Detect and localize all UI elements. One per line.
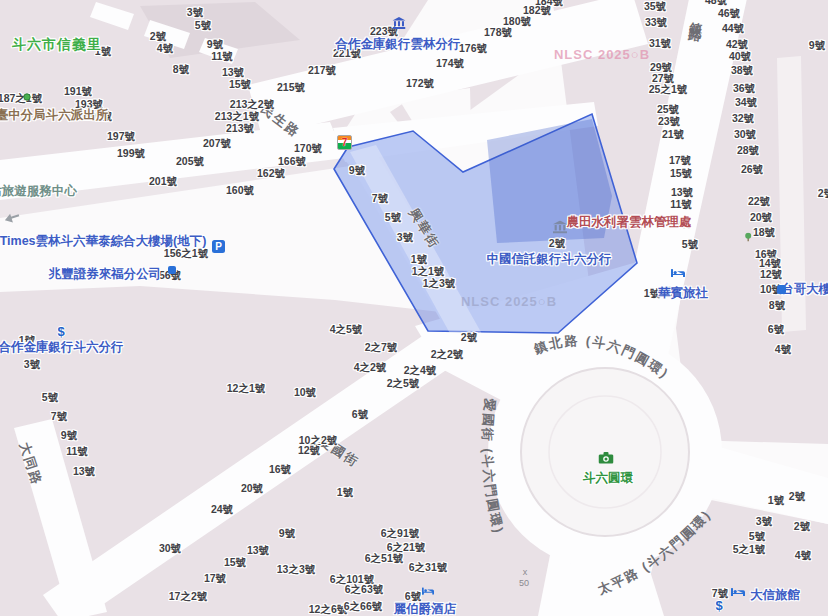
house-number-label: 8號 — [769, 299, 785, 313]
house-number-label: 35號 — [644, 0, 666, 14]
house-number-label: 3號 — [24, 358, 40, 372]
house-number-label: 15號 — [224, 556, 246, 570]
house-number-label: 9號 — [279, 527, 295, 541]
house-number-label: 160號 — [226, 184, 254, 198]
one-way-arrow-icon[interactable] — [4, 213, 21, 224]
spot-height-label: x — [523, 567, 528, 577]
house-number-label: 20號 — [241, 482, 263, 496]
police-station-label[interactable]: 臺中分局斗六派出所 — [0, 107, 108, 124]
house-number-label: 2號 — [789, 490, 805, 504]
house-number-label: 9號 — [809, 39, 825, 53]
hezuo-yunlin-branch-label[interactable]: 合作金庫銀行雲林分行 — [336, 36, 461, 53]
house-number-label: 38號 — [731, 64, 753, 78]
house-number-label: 4號 — [775, 343, 791, 357]
house-number-label: 6號 — [352, 408, 368, 422]
house-number-label: 5號 — [42, 391, 58, 405]
house-number-label: 176號 — [459, 42, 487, 56]
house-number-label: 3號 — [397, 231, 413, 245]
house-number-label: 3號 — [756, 515, 772, 529]
house-number-label: 184號 — [535, 0, 563, 9]
house-number-label: 24號 — [211, 503, 233, 517]
house-number-label: 6之31號 — [409, 561, 448, 575]
house-number-label: 6之51號 — [365, 552, 404, 566]
house-number-label: 17號 — [204, 572, 226, 586]
house-number-label: 4號 — [795, 549, 811, 563]
house-number-label: 20號 — [750, 211, 772, 225]
house-number-label: 207號 — [203, 137, 231, 151]
mega-securities-label[interactable]: 兆豐證券來福分公司 — [49, 266, 162, 283]
bed-icon[interactable] — [671, 268, 685, 278]
house-number-label: 13號 — [73, 465, 95, 479]
pin-icon[interactable] — [23, 93, 31, 101]
house-number-label: 4之2號 — [354, 361, 387, 375]
house-number-label: 7號 — [372, 192, 388, 206]
map-base-layer: 鎮北路 (斗六門圓環) 愛國街 (斗六門圓環) 太平路 (斗六門圓環) — [0, 0, 828, 616]
tree-icon[interactable] — [745, 233, 752, 242]
house-number-label: 170號 — [294, 142, 322, 156]
house-number-label: 217號 — [308, 64, 336, 78]
house-number-label: 46號 — [718, 7, 740, 21]
house-number-label: 12之1號 — [227, 382, 266, 396]
house-number-label: 32號 — [732, 112, 754, 126]
house-number-label: 34號 — [735, 96, 757, 110]
irrigation-agency-label[interactable]: 農田水利署雲林管理處 — [567, 214, 692, 231]
house-number-label: 40號 — [729, 50, 751, 64]
house-number-label: 1之3號 — [423, 277, 456, 291]
house-number-label: 15號 — [670, 167, 692, 181]
house-number-label: 36號 — [733, 82, 755, 96]
house-number-label: 201號 — [149, 175, 177, 189]
house-number-label: 2號 — [818, 187, 828, 201]
house-number-label: 25之1號 — [649, 83, 688, 97]
house-number-label: 197號 — [107, 130, 135, 144]
house-number-label: 9號 — [61, 429, 77, 443]
house-number-label: 5號 — [749, 530, 765, 544]
watermark-label: NLSC 2025○B — [461, 294, 557, 309]
house-number-label: 2號 — [549, 237, 565, 251]
house-number-label: 199號 — [117, 147, 145, 161]
house-number-label: 172號 — [406, 77, 434, 91]
house-number-label: 1號 — [768, 494, 784, 508]
house-number-label: 5之1號 — [733, 543, 766, 557]
house-number-label: 213之2號 — [230, 98, 274, 112]
house-number-label: 6之91號 — [381, 527, 420, 541]
tourist-service-center-label[interactable]: 站旅遊服務中心 — [0, 183, 77, 200]
house-number-label: 162號 — [257, 167, 285, 181]
house-number-label: 191號 — [64, 85, 92, 99]
house-number-label: 17之2號 — [169, 590, 208, 604]
house-number-label: 5號 — [195, 19, 211, 33]
house-number-label: 11號 — [211, 50, 233, 64]
house-number-label: 213號 — [226, 122, 254, 136]
house-number-label: 205號 — [176, 155, 204, 169]
huabin-hostel-label[interactable]: 華賓旅社 — [658, 285, 708, 302]
xinyi-village-label[interactable]: 斗六市信義里 — [12, 36, 102, 54]
house-number-label: 12之6號 — [309, 603, 348, 616]
dollar-icon[interactable]: $ — [57, 325, 64, 338]
house-number-label: 21號 — [662, 128, 684, 142]
house-number-label: 187之1號 — [0, 92, 42, 106]
house-number-label: 28號 — [737, 144, 759, 158]
house-number-label: 7號 — [51, 410, 67, 424]
spot-height-label: 50 — [519, 578, 529, 588]
camera-icon[interactable] — [599, 452, 614, 464]
house-number-label: 16號 — [269, 463, 291, 477]
house-number-label: 2號 — [461, 331, 477, 345]
house-number-label: 26號 — [741, 163, 763, 177]
house-number-label: 11號 — [670, 198, 692, 212]
house-number-label: 1號 — [337, 486, 353, 500]
house-number-label: 6之63號 — [345, 583, 384, 597]
daxin-hotel-label[interactable]: 大信旅館 — [750, 587, 800, 604]
hezuo-douliu-branch-label[interactable]: 合作金庫銀行斗六分行 — [0, 339, 124, 356]
watermark-label: NLSC 2025○B — [554, 47, 650, 62]
house-number-label: 33號 — [645, 16, 667, 30]
government-building-icon[interactable] — [553, 221, 567, 234]
dollar-icon[interactable]: $ — [715, 599, 722, 612]
house-number-label: 9號 — [349, 164, 365, 178]
house-number-label: 18號 — [753, 226, 775, 240]
grand-earl-hotel-label[interactable]: 麗伯爵酒店 — [394, 601, 457, 616]
house-number-label: 6號 — [768, 323, 784, 337]
douliu-circle-label[interactable]: 斗六圓環 — [583, 470, 633, 487]
house-number-label: 13號 — [247, 544, 269, 558]
times-parking-label[interactable]: Times雲林斗六華泰綜合大樓場(地下) — [0, 233, 206, 250]
house-number-label: 2號 — [794, 520, 810, 534]
house-number-label: 31號 — [649, 37, 671, 51]
map-canvas[interactable]: 鎮北路 (斗六門圓環) 愛國街 (斗六門圓環) 太平路 (斗六門圓環) 民生路 … — [0, 0, 828, 616]
house-number-label: 30號 — [159, 542, 181, 556]
house-number-label: 12號 — [298, 444, 320, 458]
house-number-label: 23號 — [658, 115, 680, 129]
house-number-label: 2之2號 — [431, 348, 464, 362]
house-number-label: 5號 — [682, 238, 698, 252]
taiwan-mobile-building-label[interactable]: 台哥大樓 — [781, 281, 828, 298]
house-number-label: 13之3號 — [277, 563, 316, 577]
house-number-label: 215號 — [277, 81, 305, 95]
house-number-label: 11號 — [66, 445, 88, 459]
house-number-label: 2之5號 — [387, 377, 420, 391]
house-number-label: 17號 — [669, 154, 691, 168]
house-number-label: 4號 — [157, 42, 173, 56]
bed-icon[interactable] — [731, 587, 745, 597]
house-number-label: 5號 — [385, 211, 401, 225]
house-number-label: 8號 — [173, 63, 189, 77]
house-number-label: 3號 — [187, 6, 203, 20]
house-number-label: 2之7號 — [365, 341, 398, 355]
house-number-label: 22號 — [748, 195, 770, 209]
house-number-label: 174號 — [436, 57, 464, 71]
house-number-label: 2之4號 — [404, 364, 437, 378]
house-number-label: 10號 — [294, 386, 316, 400]
house-number-label: 12號 — [760, 268, 782, 282]
hotel-icon[interactable] — [422, 586, 434, 596]
house-number-label: 6之66號 — [344, 600, 383, 614]
house-number-label: 30號 — [734, 128, 756, 142]
house-number-label: 44號 — [722, 22, 744, 36]
ctbc-douliu-branch-label[interactable]: 中國信託銀行斗六分行 — [487, 251, 612, 268]
bank-icon[interactable] — [393, 17, 406, 29]
house-number-label: 15號 — [229, 78, 251, 92]
house-number-label: 4之5號 — [330, 323, 363, 337]
house-number-label: 213之1號 — [215, 110, 259, 124]
